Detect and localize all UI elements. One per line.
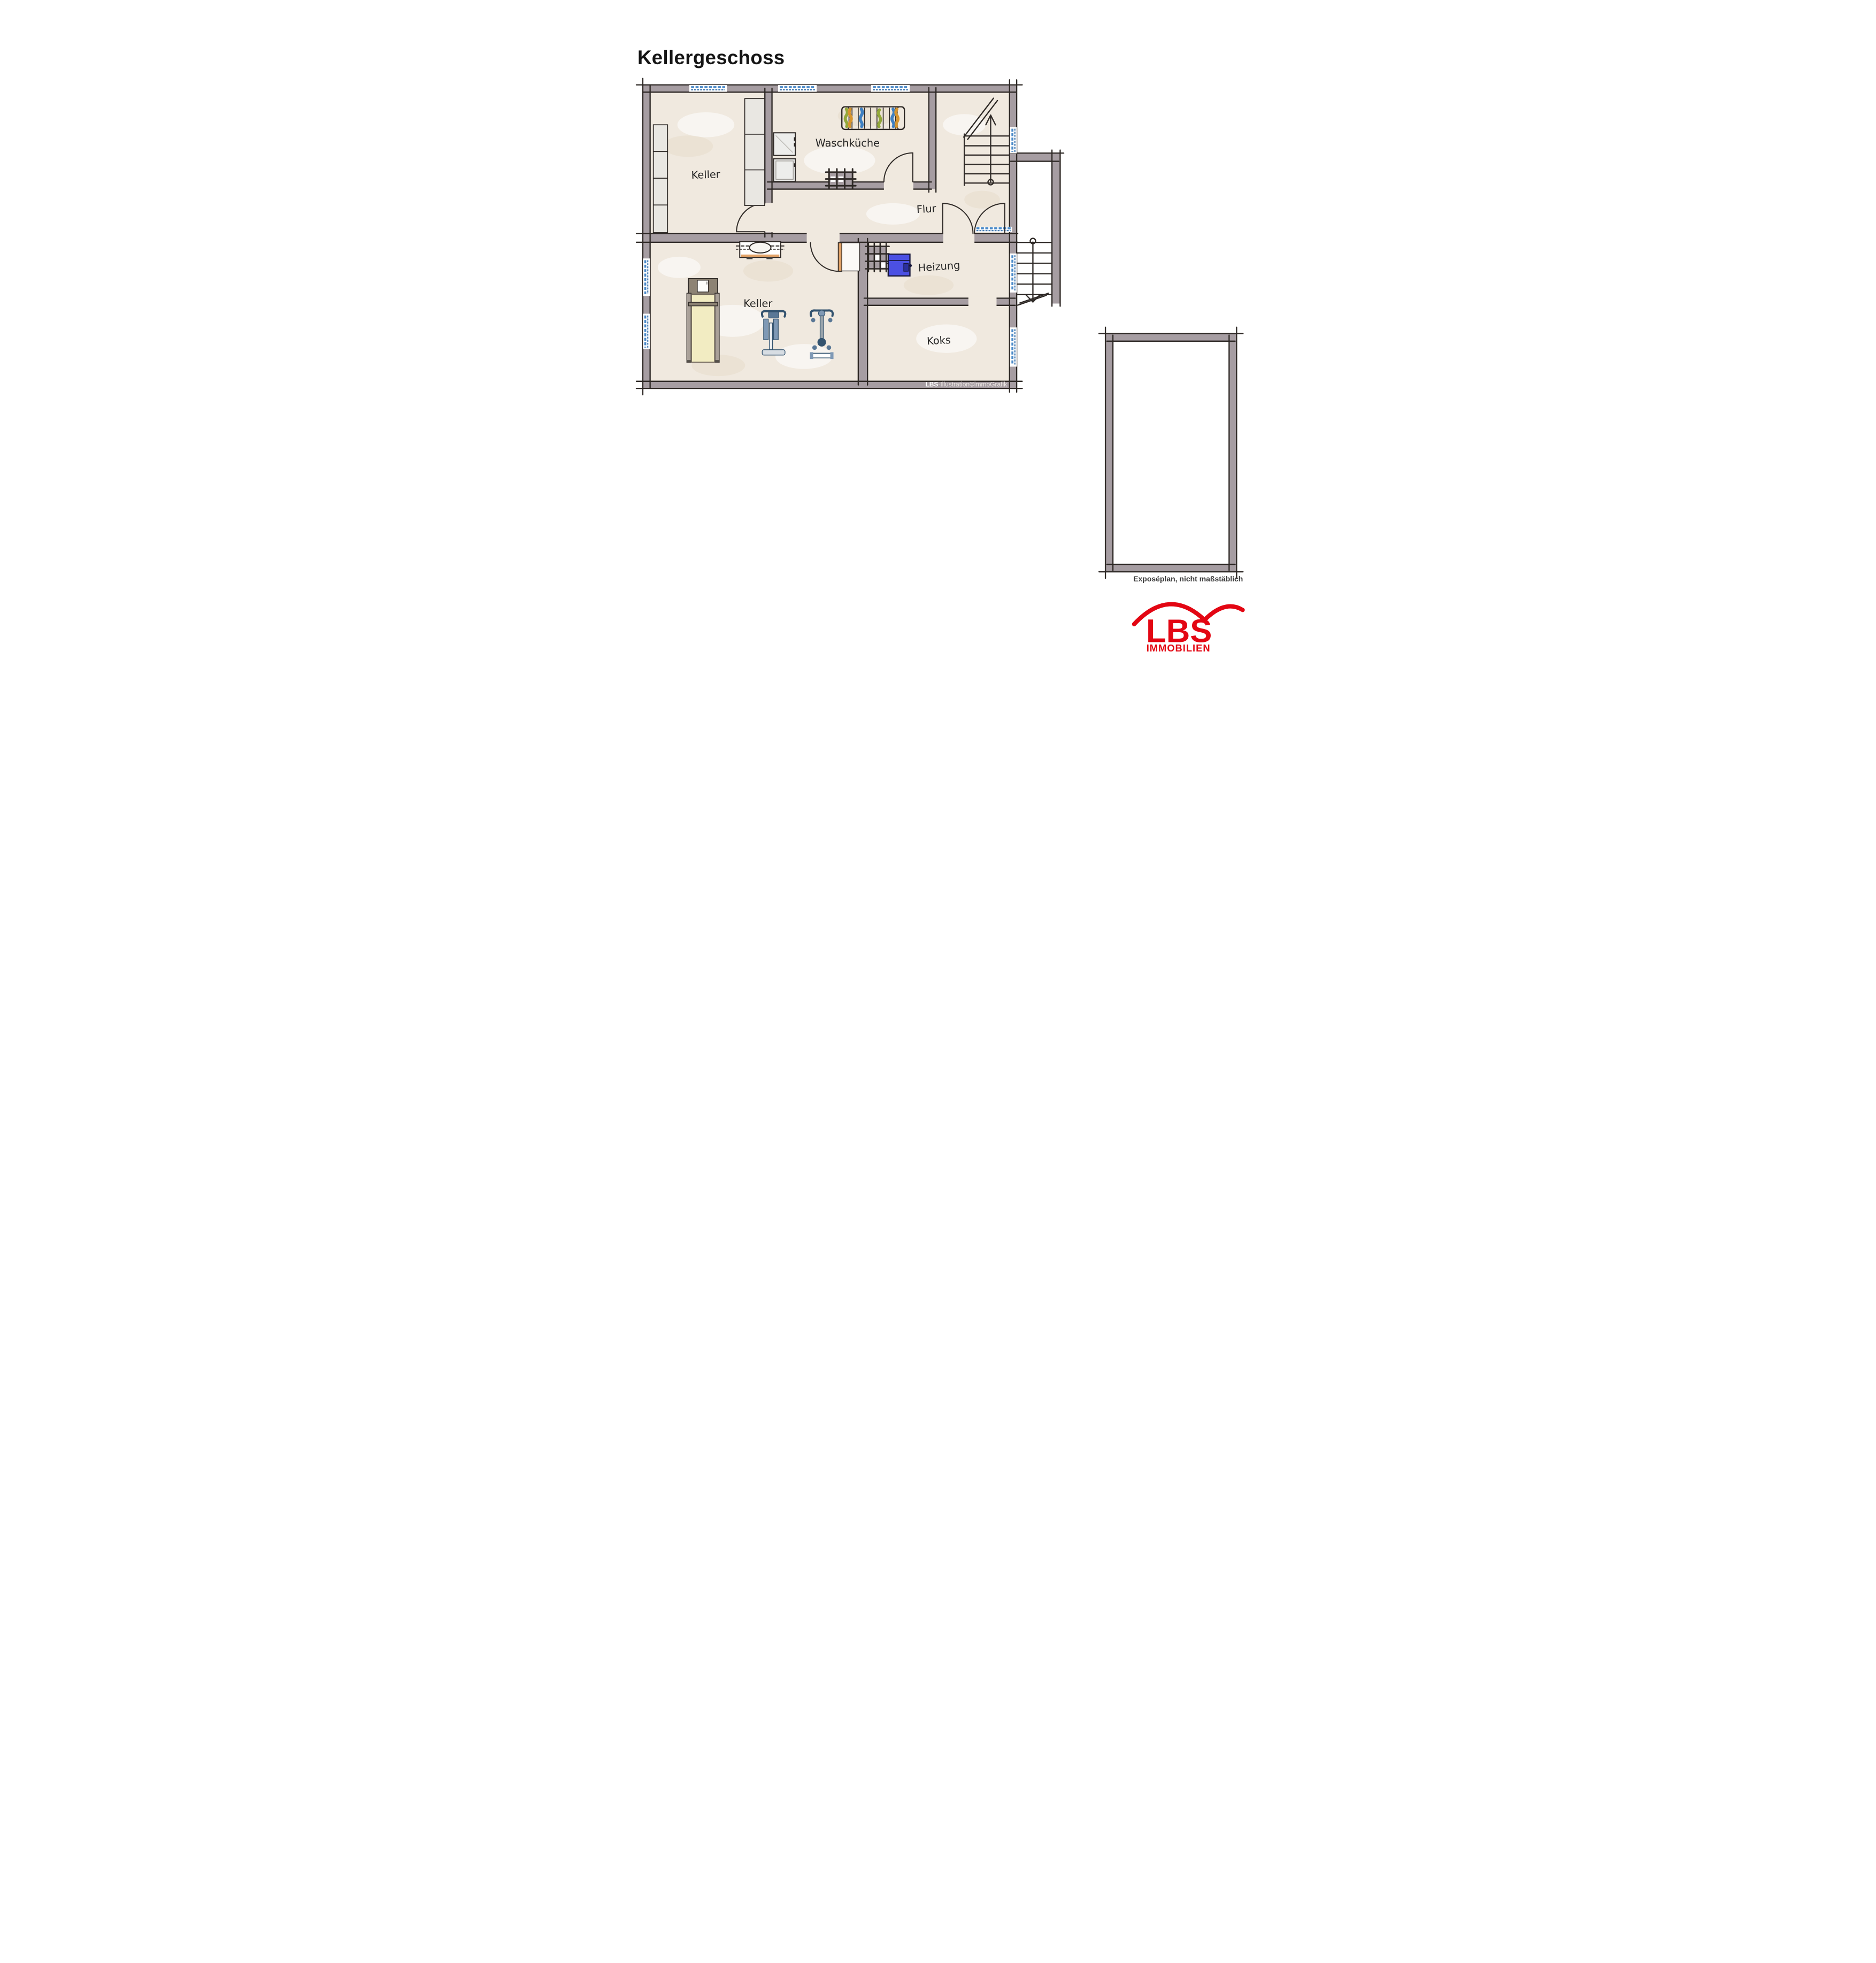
footnote: Exposéplan, nicht maßstäblich: [1133, 574, 1243, 583]
shelf-right: [744, 98, 764, 205]
wall-exterior-stair: [1051, 153, 1060, 304]
dryer: [773, 159, 795, 181]
window-icon-right-stairwell: [1010, 127, 1017, 154]
room-label-flur: Flur: [916, 202, 936, 216]
window-icon-left-1: [643, 258, 650, 296]
washing-machine: [773, 133, 795, 155]
annex-outlines: [1099, 327, 1243, 578]
window-icon-left-2: [643, 314, 650, 349]
window-icon-top-2: [778, 85, 816, 92]
floor-plan: Keller Waschküche Flur Keller Heizung Ko…: [636, 79, 1063, 395]
floorplan-page: Kellergeschoss: [626, 0, 1251, 654]
boiler: [888, 254, 911, 276]
wall-stairwell: [928, 92, 936, 189]
grid-window-icon: [826, 169, 856, 189]
shelf-left: [653, 125, 667, 233]
room-label-koks: Koks: [926, 334, 951, 347]
window-icon-right-koks: [1010, 327, 1017, 366]
page-title: Kellergeschoss: [637, 47, 785, 68]
window-icon-top-1: [689, 85, 726, 92]
window-icon-top-3: [871, 85, 909, 92]
plan-copyright: LBS-Illustration©immoGrafik: [925, 380, 1008, 388]
room-label-keller-top: Keller: [691, 168, 720, 181]
treadmill: [687, 279, 719, 363]
chimney: [865, 243, 889, 272]
lbs-logo: LBS IMMOBILIEN: [1134, 604, 1242, 654]
window-icon-flur: [975, 227, 1012, 232]
washbasin: [735, 242, 784, 259]
logo-subtitle: IMMOBILIEN: [1146, 642, 1210, 654]
room-label-keller-unten: Keller: [743, 297, 772, 310]
room-label-waschkueche: Waschküche: [815, 137, 879, 149]
stairs-exterior-icon: [1017, 239, 1051, 305]
annex-room-outline: [1099, 327, 1243, 578]
window-icon-right-heizung: [1010, 254, 1017, 293]
